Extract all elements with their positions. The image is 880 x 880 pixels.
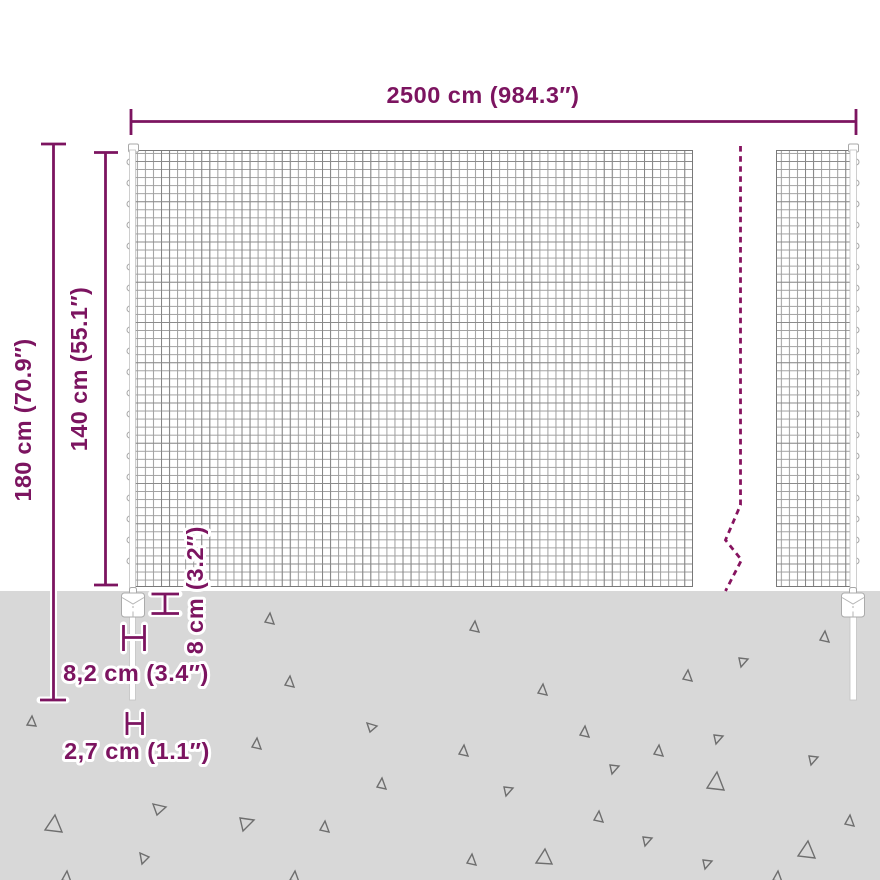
svg-text:8 cm (3.2″): 8 cm (3.2″) bbox=[182, 526, 208, 654]
svg-text:8,2 cm (3.4″): 8,2 cm (3.4″) bbox=[63, 660, 209, 686]
svg-text:2,7 cm (1.1″): 2,7 cm (1.1″) bbox=[64, 738, 210, 764]
svg-text:2500 cm (984.3″): 2500 cm (984.3″) bbox=[386, 82, 579, 108]
svg-text:140 cm (55.1″): 140 cm (55.1″) bbox=[66, 287, 92, 451]
svg-text:180 cm (70.9″): 180 cm (70.9″) bbox=[10, 338, 36, 501]
